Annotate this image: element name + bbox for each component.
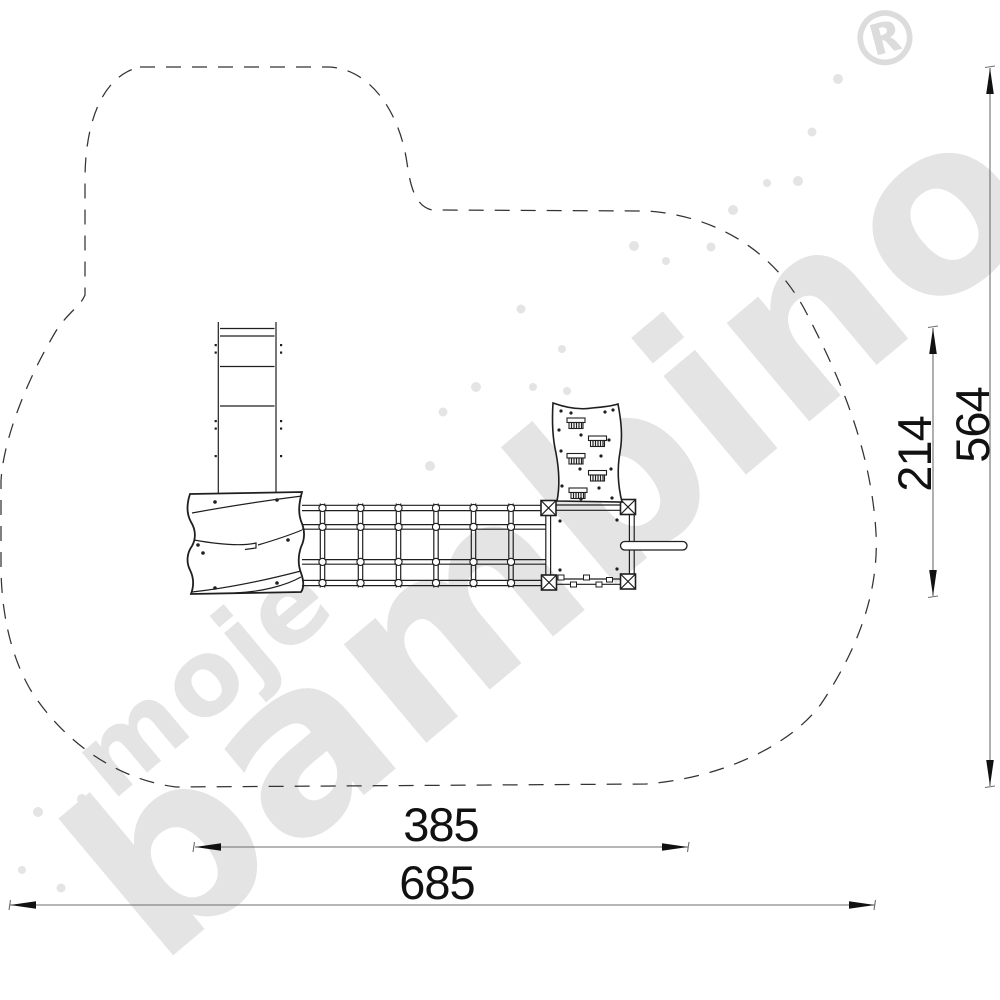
watermark-layer: moje bambino ® (18, 0, 1000, 1000)
dimension-label-385: 385 (403, 798, 478, 851)
dimension-label-685: 685 (399, 856, 474, 909)
technical-drawing: moje bambino ® (0, 0, 1000, 1000)
ladder-bolts (215, 344, 283, 457)
climbing-wall (552, 403, 622, 502)
lookout-platform (188, 492, 305, 594)
slide-exit (621, 542, 688, 551)
entry-ladder (215, 322, 283, 494)
dimension-label-564: 564 (946, 387, 999, 462)
dimension-label-214: 214 (888, 416, 941, 491)
